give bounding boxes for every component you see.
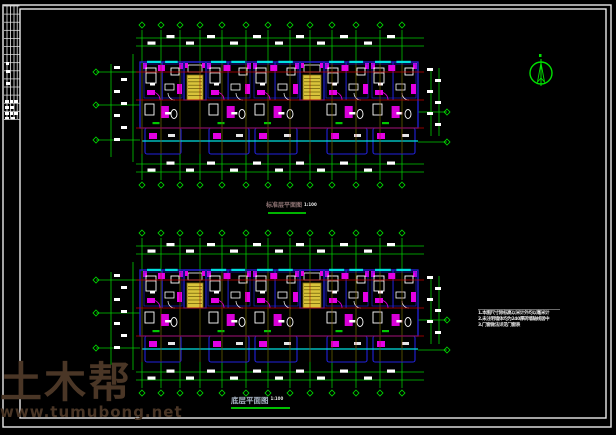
watermark-url: www.tumubong.net <box>0 405 183 420</box>
note-line: 3.门窗做法详见门窗表 <box>478 324 560 329</box>
cad-sheet: 标准层平面图1:100 底层平面图1:100 1.本图尺寸除标高以米计外均以毫米… <box>0 0 616 435</box>
title-block-strip <box>4 6 20 120</box>
note-line: 1.本图尺寸除标高以米计外均以毫米计 <box>478 312 560 317</box>
plan-title-bottom-text: 底层平面图 <box>231 396 269 405</box>
plan-title-bottom: 底层平面图1:100 <box>231 397 283 405</box>
plan-scale-bottom: 1:100 <box>271 396 284 401</box>
note-line: 2.未注明墙体均为240厚砖墙轴线居中 <box>478 318 560 323</box>
plan-title-top-text: 标准层平面图 <box>266 202 302 209</box>
watermark-logo-text: 土木帮 <box>0 362 183 404</box>
notes-divider <box>478 309 560 310</box>
plan-title-top: 标准层平面图1:100 <box>266 203 317 209</box>
north-arrow-icon <box>530 54 552 86</box>
plan-title-bottom-underline <box>231 407 290 409</box>
plan-scale-top: 1:100 <box>304 202 317 207</box>
watermark: 土木帮 www.tumubong.net <box>0 362 183 420</box>
notes-block: 1.本图尺寸除标高以米计外均以毫米计 2.未注明墙体均为240厚砖墙轴线居中 3… <box>478 309 560 329</box>
top-plan <box>93 22 450 188</box>
plan-title-top-underline <box>268 212 306 214</box>
